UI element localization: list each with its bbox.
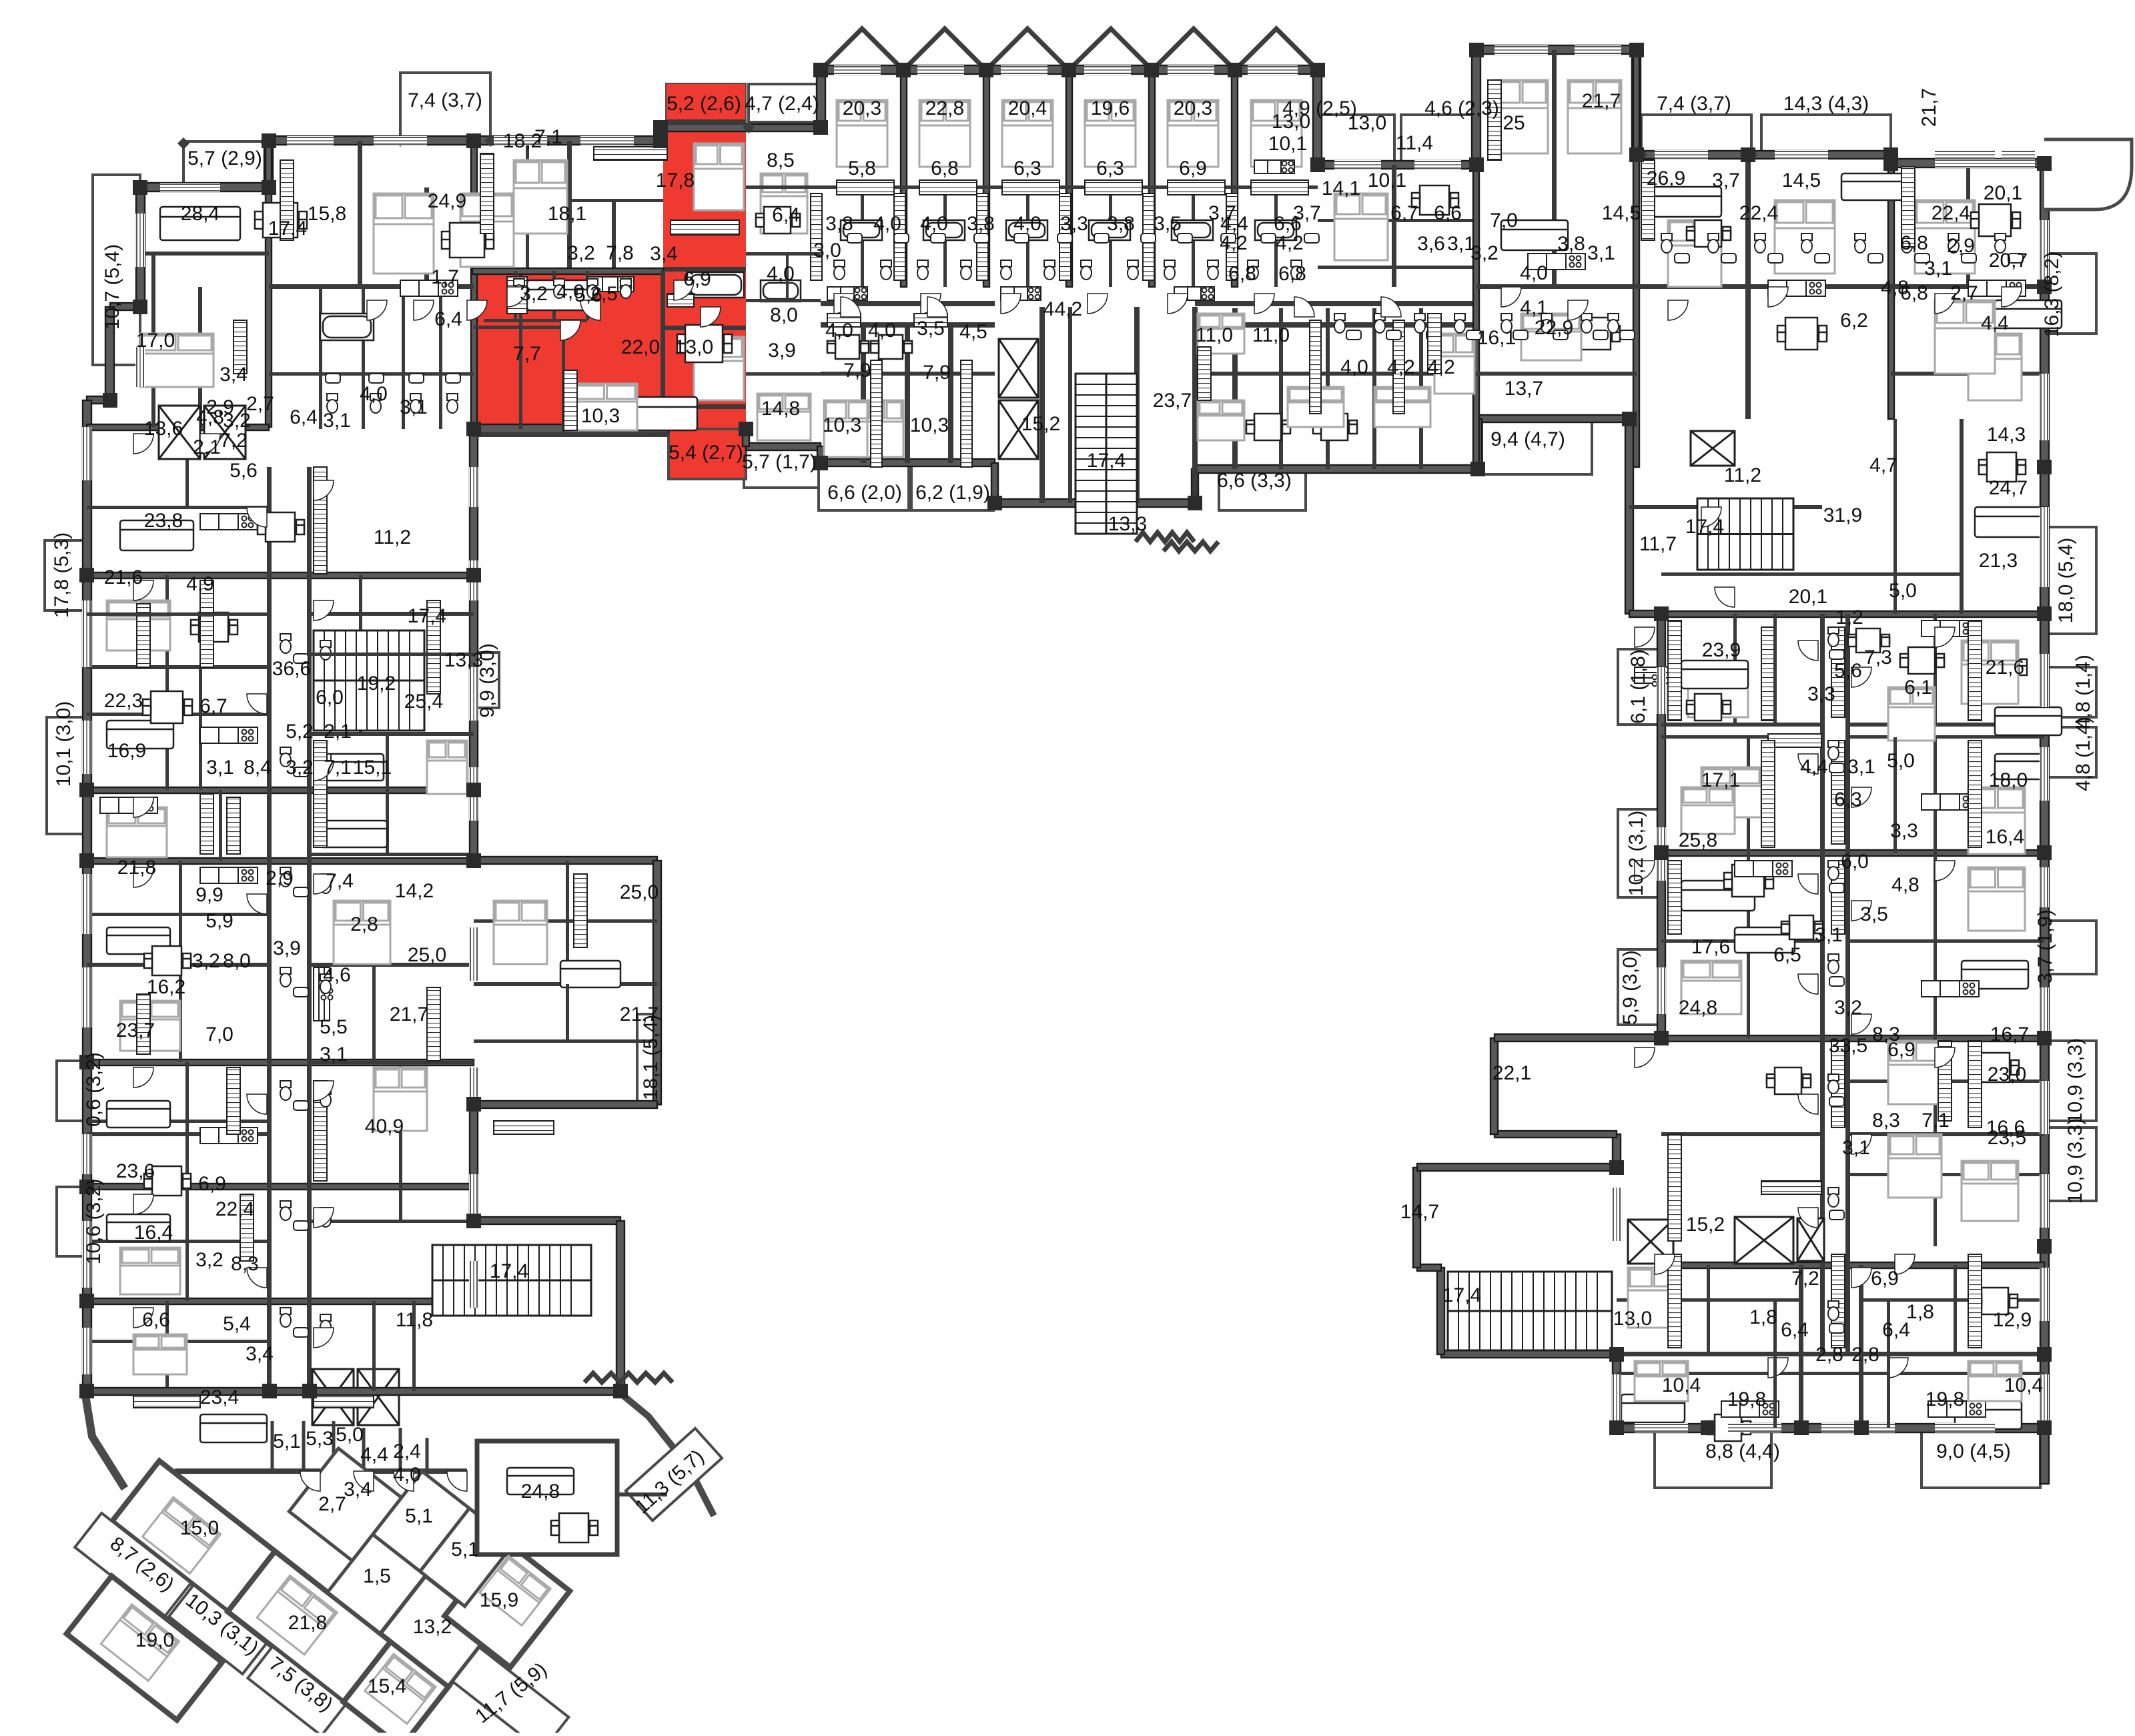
svg-text:2,7: 2,7 (318, 1493, 346, 1515)
svg-text:3,1: 3,1 (400, 396, 428, 418)
svg-text:23,8: 23,8 (144, 510, 183, 532)
svg-text:4,8 (1,4): 4,8 (1,4) (2072, 717, 2094, 791)
svg-text:6,9: 6,9 (1887, 1039, 1915, 1061)
svg-text:4,0: 4,0 (873, 213, 901, 235)
svg-text:4,6: 4,6 (323, 964, 351, 986)
svg-text:4,8: 4,8 (1891, 874, 1919, 896)
svg-text:3,2: 3,2 (192, 950, 220, 972)
svg-text:13,0: 13,0 (1613, 1308, 1652, 1330)
svg-text:3,5: 3,5 (917, 318, 945, 340)
svg-text:8,5: 8,5 (767, 149, 795, 171)
svg-text:24,7: 24,7 (1989, 477, 2028, 499)
svg-text:13,7: 13,7 (1505, 378, 1543, 400)
svg-text:10,9 (3,3): 10,9 (3,3) (2064, 1118, 2086, 1204)
svg-text:3,8: 3,8 (967, 213, 995, 235)
svg-text:3,2: 3,2 (1470, 242, 1499, 264)
svg-text:5,1: 5,1 (405, 1505, 433, 1527)
svg-text:21,6: 21,6 (104, 566, 143, 588)
svg-text:10,7 (5,4): 10,7 (5,4) (101, 244, 123, 330)
svg-text:4,7: 4,7 (1869, 454, 1897, 476)
svg-text:4,5: 4,5 (959, 321, 987, 343)
svg-text:13,0: 13,0 (675, 336, 713, 358)
svg-text:6,7: 6,7 (1390, 202, 1418, 224)
svg-text:14,3: 14,3 (1987, 424, 2026, 446)
svg-text:11,4: 11,4 (1396, 132, 1433, 154)
svg-text:6,7: 6,7 (199, 695, 228, 717)
svg-text:20,3: 20,3 (843, 97, 881, 119)
svg-text:7,8: 7,8 (606, 242, 634, 264)
svg-text:5,2 (2,6): 5,2 (2,6) (667, 93, 741, 115)
svg-text:7,0: 7,0 (205, 1023, 234, 1045)
svg-text:11,0: 11,0 (1196, 324, 1233, 346)
svg-text:4,9: 4,9 (186, 573, 214, 595)
svg-text:5,0: 5,0 (1889, 580, 1917, 602)
svg-text:19,8: 19,8 (1727, 1388, 1766, 1410)
svg-text:3,7: 3,7 (1712, 169, 1740, 191)
svg-text:12,9: 12,9 (1993, 1309, 2032, 1331)
svg-text:20,1: 20,1 (1789, 586, 1827, 608)
svg-text:16,9: 16,9 (107, 740, 146, 762)
svg-text:11,7: 11,7 (1639, 533, 1677, 555)
svg-text:6,3: 6,3 (1096, 157, 1124, 179)
svg-text:15,1: 15,1 (353, 757, 392, 779)
svg-text:15,9: 15,9 (480, 1589, 518, 1611)
svg-text:3,4: 3,4 (246, 1343, 274, 1365)
svg-text:6,4: 6,4 (434, 308, 462, 330)
svg-text:36,6: 36,6 (272, 658, 311, 680)
svg-text:23,6: 23,6 (116, 1160, 155, 1182)
svg-text:11,8: 11,8 (396, 1309, 433, 1331)
svg-text:13,0: 13,0 (1348, 112, 1386, 134)
svg-text:17,4: 17,4 (1087, 450, 1126, 472)
svg-text:3,2: 3,2 (195, 1249, 224, 1271)
svg-text:4,2: 4,2 (1427, 356, 1455, 378)
svg-text:7,4: 7,4 (326, 870, 354, 892)
svg-text:7,7: 7,7 (513, 343, 541, 365)
svg-text:6,6: 6,6 (1434, 202, 1462, 224)
svg-text:17,0: 17,0 (136, 330, 175, 352)
svg-text:16,4: 16,4 (1986, 826, 2024, 848)
svg-text:4,0: 4,0 (1340, 356, 1368, 378)
svg-text:40,9: 40,9 (365, 1116, 404, 1138)
svg-text:14,5: 14,5 (1782, 169, 1821, 191)
svg-text:1,7: 1,7 (431, 266, 459, 288)
svg-text:6,4: 6,4 (290, 406, 318, 428)
svg-text:4,8: 4,8 (196, 406, 224, 428)
svg-text:6,1 (1,8): 6,1 (1,8) (1627, 649, 1649, 724)
svg-text:6,8: 6,8 (1900, 232, 1928, 254)
svg-text:1,5: 1,5 (363, 1565, 391, 1587)
svg-text:10,4: 10,4 (1662, 1374, 1701, 1396)
svg-text:15,2: 15,2 (1021, 413, 1060, 435)
svg-text:4,7 (2,4): 4,7 (2,4) (745, 93, 819, 115)
svg-text:16,4: 16,4 (134, 1222, 173, 1244)
svg-text:3,8: 3,8 (1557, 233, 1585, 255)
svg-text:6,2: 6,2 (1840, 310, 1868, 332)
svg-text:5,7 (1,7): 5,7 (1,7) (742, 451, 817, 473)
svg-text:25,8: 25,8 (1679, 829, 1717, 851)
svg-text:14,7: 14,7 (1400, 1201, 1439, 1223)
svg-text:13,6: 13,6 (144, 418, 183, 440)
svg-text:5,6: 5,6 (230, 460, 258, 482)
svg-text:7,4 (3,7): 7,4 (3,7) (408, 89, 482, 111)
svg-text:6,9: 6,9 (683, 268, 711, 290)
svg-text:22,4: 22,4 (1739, 202, 1778, 224)
svg-text:28,4: 28,4 (181, 203, 220, 225)
svg-text:21,7: 21,7 (620, 1003, 659, 1025)
svg-text:14,3 (4,3): 14,3 (4,3) (1783, 93, 1869, 115)
svg-text:11,2: 11,2 (1724, 464, 1761, 486)
svg-text:21,8: 21,8 (117, 857, 156, 879)
svg-text:10,3: 10,3 (581, 405, 620, 427)
svg-text:4,0: 4,0 (1520, 262, 1548, 284)
svg-text:6,3: 6,3 (1834, 789, 1862, 811)
svg-text:17,1: 17,1 (1701, 769, 1740, 791)
svg-text:17,4: 17,4 (268, 218, 307, 240)
svg-text:6,8: 6,8 (1278, 263, 1306, 285)
svg-text:23,7: 23,7 (116, 1019, 155, 1041)
svg-text:7,4 (3,7): 7,4 (3,7) (1657, 93, 1731, 115)
svg-text:25,0: 25,0 (620, 881, 659, 903)
svg-text:21,7: 21,7 (1582, 90, 1621, 112)
svg-text:5,1: 5,1 (451, 1539, 479, 1561)
svg-text:5,3: 5,3 (306, 1428, 334, 1450)
svg-text:10,9 (3,3): 10,9 (3,3) (2064, 1038, 2086, 1124)
svg-text:25,0: 25,0 (408, 944, 446, 966)
svg-text:1,8: 1,8 (1906, 1301, 1934, 1323)
svg-text:8,0: 8,0 (223, 950, 251, 972)
svg-text:6,6: 6,6 (142, 1309, 170, 1331)
svg-text:17,4: 17,4 (408, 605, 446, 627)
svg-text:22,0: 22,0 (621, 336, 660, 358)
svg-text:8,4: 8,4 (244, 757, 272, 779)
svg-text:10,3: 10,3 (823, 414, 861, 436)
svg-text:25: 25 (1503, 112, 1525, 134)
svg-text:22,9: 22,9 (1535, 317, 1573, 339)
svg-text:10,3: 10,3 (910, 414, 949, 436)
svg-text:5,9 (3,0): 5,9 (3,0) (1619, 950, 1641, 1025)
svg-text:2,1: 2,1 (324, 721, 352, 743)
svg-text:4,0: 4,0 (360, 383, 388, 405)
svg-text:2,1: 2,1 (193, 436, 221, 458)
svg-text:7,1: 7,1 (324, 757, 352, 779)
svg-text:21,7: 21,7 (390, 1003, 428, 1025)
svg-text:3,5: 3,5 (1154, 213, 1182, 235)
svg-text:10,6 (3,2): 10,6 (3,2) (83, 1179, 105, 1264)
svg-text:17,8 (5,3): 17,8 (5,3) (51, 532, 73, 618)
svg-text:16,2: 16,2 (147, 976, 185, 998)
svg-text:3,1: 3,1 (1842, 1137, 1870, 1159)
svg-text:19,8: 19,8 (1926, 1388, 1964, 1410)
svg-text:9,4 (4,7): 9,4 (4,7) (1490, 428, 1565, 450)
svg-text:11,2: 11,2 (374, 526, 411, 548)
svg-text:4,2: 4,2 (1387, 356, 1415, 378)
svg-text:11,0: 11,0 (1252, 324, 1290, 346)
svg-text:8,8 (4,4): 8,8 (4,4) (1705, 1440, 1780, 1462)
svg-text:7,3: 7,3 (1864, 646, 1892, 669)
svg-text:7,1: 7,1 (1922, 1110, 1950, 1132)
svg-text:7,2: 7,2 (220, 430, 248, 452)
svg-text:3,7 (1,9): 3,7 (1,9) (2034, 909, 2056, 984)
svg-text:18,0: 18,0 (1989, 769, 2028, 791)
svg-text:23,9: 23,9 (1702, 639, 1741, 661)
svg-text:3,1: 3,1 (323, 410, 351, 432)
svg-text:5,8: 5,8 (848, 157, 876, 179)
svg-text:23,5: 23,5 (1988, 1127, 2026, 1149)
svg-text:7,9: 7,9 (843, 360, 871, 382)
svg-text:3,6: 3,6 (1417, 233, 1445, 255)
svg-text:2,9: 2,9 (1947, 235, 1975, 257)
svg-text:6,6 (3,3): 6,6 (3,3) (1217, 470, 1292, 492)
svg-text:7,9: 7,9 (923, 362, 951, 384)
svg-text:22,1: 22,1 (1492, 1062, 1531, 1084)
svg-text:4,0: 4,0 (1013, 213, 1041, 235)
svg-text:9,9 (3,0): 9,9 (3,0) (476, 643, 498, 718)
svg-text:6,0: 6,0 (1841, 851, 1869, 873)
svg-text:19,6: 19,6 (1091, 97, 1130, 119)
svg-text:21,8: 21,8 (288, 1612, 327, 1634)
svg-text:22,3: 22,3 (104, 690, 143, 712)
svg-text:3,5: 3,5 (1860, 903, 1888, 925)
svg-text:20,1: 20,1 (1984, 182, 2022, 204)
svg-text:2,8: 2,8 (1815, 1344, 1843, 1366)
svg-text:3,8: 3,8 (1107, 213, 1135, 235)
svg-text:3,3: 3,3 (1060, 213, 1088, 235)
svg-text:22,4: 22,4 (216, 1198, 254, 1220)
svg-text:3,1: 3,1 (1587, 242, 1615, 264)
svg-text:20,4: 20,4 (1008, 97, 1047, 119)
svg-text:3,2: 3,2 (223, 410, 251, 432)
svg-text:4,8: 4,8 (1881, 277, 1909, 299)
svg-text:5,6: 5,6 (1834, 660, 1862, 682)
svg-text:10,1 (3,0): 10,1 (3,0) (53, 701, 75, 787)
svg-text:3,1: 3,1 (1815, 924, 1843, 946)
svg-text:10,1: 10,1 (1268, 133, 1307, 155)
svg-text:33,5: 33,5 (1829, 1035, 1867, 1057)
svg-text:9,9: 9,9 (195, 884, 224, 906)
svg-text:3,1: 3,1 (320, 1043, 348, 1065)
svg-text:4,2: 4,2 (1220, 232, 1248, 254)
svg-text:3,2: 3,2 (567, 242, 595, 264)
svg-text:6,9: 6,9 (1871, 1268, 1899, 1290)
svg-text:5,2: 5,2 (286, 721, 314, 743)
svg-text:1,2: 1,2 (1835, 606, 1863, 628)
svg-text:26,9: 26,9 (1647, 167, 1685, 189)
svg-text:7,2: 7,2 (1791, 1268, 1819, 1290)
svg-text:6,2 (1,9): 6,2 (1,9) (915, 482, 990, 504)
svg-text:8,3: 8,3 (1872, 1110, 1900, 1132)
svg-text:5,7 (2,9): 5,7 (2,9) (187, 147, 262, 169)
svg-text:14,1: 14,1 (1322, 177, 1360, 199)
svg-text:18,1 (5,4): 18,1 (5,4) (640, 1015, 662, 1100)
svg-text:4,0: 4,0 (868, 320, 896, 342)
svg-text:18,1: 18,1 (548, 203, 586, 225)
svg-text:2,8: 2,8 (350, 913, 378, 935)
svg-text:20,7: 20,7 (1989, 250, 2028, 272)
svg-text:3,8: 3,8 (825, 213, 853, 235)
svg-text:24,9: 24,9 (428, 190, 466, 212)
svg-text:5,9: 5,9 (205, 910, 234, 932)
svg-text:6,6 (2,0): 6,6 (2,0) (827, 482, 902, 504)
svg-text:4,2: 4,2 (1276, 232, 1304, 254)
svg-text:18,0 (5,4): 18,0 (5,4) (2055, 538, 2077, 623)
svg-text:9,0 (4,5): 9,0 (4,5) (1936, 1440, 2011, 1462)
svg-text:13,2: 13,2 (413, 1616, 452, 1638)
svg-text:7,1: 7,1 (534, 126, 562, 148)
svg-text:31,9: 31,9 (1823, 504, 1862, 526)
svg-text:5,4: 5,4 (223, 1313, 251, 1335)
svg-text:3,2: 3,2 (520, 283, 548, 305)
svg-text:17,4: 17,4 (1685, 516, 1724, 538)
svg-text:23,0: 23,0 (1988, 1063, 2026, 1086)
svg-text:7,0: 7,0 (1490, 209, 1518, 232)
svg-text:6,4: 6,4 (1882, 1319, 1910, 1341)
svg-text:17,6: 17,6 (1691, 936, 1730, 958)
svg-text:20,3: 20,3 (1174, 97, 1212, 119)
svg-text:6,4: 6,4 (1781, 1319, 1809, 1341)
svg-text:24,8: 24,8 (1679, 997, 1717, 1019)
svg-text:6,9: 6,9 (1179, 157, 1207, 179)
svg-text:4,0: 4,0 (825, 320, 853, 342)
svg-text:3,2: 3,2 (1834, 997, 1862, 1019)
svg-text:23,7: 23,7 (1153, 390, 1192, 412)
svg-text:5,4 (2,7): 5,4 (2,7) (669, 442, 743, 464)
svg-text:3,4: 3,4 (220, 364, 248, 386)
svg-text:3,7: 3,7 (1208, 202, 1236, 224)
svg-text:10,1: 10,1 (1368, 169, 1406, 191)
svg-text:3,4: 3,4 (344, 1478, 372, 1500)
svg-text:13,3: 13,3 (1108, 513, 1147, 535)
svg-text:3,2: 3,2 (286, 757, 314, 779)
svg-text:6,9: 6,9 (198, 1173, 226, 1195)
svg-text:0,6 (3,2): 0,6 (3,2) (83, 1052, 105, 1127)
svg-text:6,4: 6,4 (772, 204, 800, 226)
svg-text:14,8: 14,8 (761, 398, 800, 420)
svg-text:3,1: 3,1 (206, 757, 234, 779)
svg-text:10,4: 10,4 (2004, 1374, 2043, 1396)
svg-text:15,0: 15,0 (180, 1517, 219, 1539)
svg-text:24,8: 24,8 (521, 1480, 560, 1502)
svg-text:4,0: 4,0 (393, 1464, 421, 1486)
svg-text:3,3: 3,3 (1807, 683, 1835, 705)
svg-text:17,4: 17,4 (490, 1260, 528, 1282)
svg-text:6,5: 6,5 (1773, 944, 1801, 966)
svg-text:16,1: 16,1 (1477, 327, 1516, 349)
svg-text:2,4: 2,4 (393, 1440, 421, 1462)
svg-text:22,4: 22,4 (1932, 202, 1970, 224)
svg-text:5,5: 5,5 (320, 1016, 348, 1038)
svg-text:1,8: 1,8 (1749, 1306, 1777, 1328)
svg-text:5,1: 5,1 (273, 1430, 301, 1452)
svg-text:21,6: 21,6 (1986, 657, 2024, 679)
svg-text:2,7: 2,7 (1950, 282, 1978, 304)
svg-text:4,0: 4,0 (920, 213, 948, 235)
svg-text:15,8: 15,8 (308, 203, 346, 225)
svg-text:16,7: 16,7 (1990, 1023, 2029, 1045)
svg-text:15,4: 15,4 (368, 1675, 406, 1697)
svg-text:3,9: 3,9 (273, 937, 301, 959)
svg-text:21,7: 21,7 (1918, 88, 1940, 127)
svg-text:23,4: 23,4 (200, 1386, 239, 1408)
svg-text:16,3 (8,2): 16,3 (8,2) (2041, 252, 2063, 337)
svg-text:10,2 (3,1): 10,2 (3,1) (1625, 811, 1647, 896)
svg-text:4,1: 4,1 (1520, 297, 1548, 319)
svg-text:14,2: 14,2 (395, 880, 434, 902)
svg-text:3,9: 3,9 (768, 340, 796, 362)
svg-text:44,2: 44,2 (1043, 298, 1082, 320)
svg-text:25,4: 25,4 (404, 691, 443, 713)
svg-text:3,0: 3,0 (813, 240, 841, 262)
svg-text:4,0: 4,0 (767, 263, 795, 285)
svg-text:17,8: 17,8 (656, 169, 695, 191)
svg-text:4,4: 4,4 (1800, 756, 1828, 778)
svg-text:2,8: 2,8 (1851, 1344, 1879, 1366)
svg-text:4,6 (2,3): 4,6 (2,3) (1424, 97, 1499, 119)
svg-text:17,4: 17,4 (1442, 1284, 1481, 1306)
svg-text:4,4: 4,4 (1981, 312, 2009, 334)
svg-text:14,5: 14,5 (1602, 202, 1641, 224)
svg-text:6,8: 6,8 (1228, 263, 1256, 285)
svg-text:3,1: 3,1 (1847, 756, 1875, 778)
svg-text:5,0: 5,0 (1887, 750, 1915, 772)
svg-text:19,2: 19,2 (357, 673, 396, 695)
svg-text:21,3: 21,3 (1979, 550, 2018, 572)
svg-text:3,3: 3,3 (1890, 820, 1918, 842)
svg-text:3,1: 3,1 (1924, 258, 1952, 280)
svg-text:22,8: 22,8 (925, 97, 964, 119)
svg-text:8,0: 8,0 (770, 304, 798, 326)
svg-text:15,2: 15,2 (1686, 1214, 1725, 1236)
svg-text:3,4: 3,4 (650, 243, 678, 265)
svg-text:6,0: 6,0 (316, 687, 344, 709)
svg-text:19,0: 19,0 (135, 1629, 174, 1651)
svg-text:6,8: 6,8 (931, 157, 959, 179)
svg-text:5,0: 5,0 (336, 1424, 364, 1446)
svg-text:3,7: 3,7 (1293, 202, 1321, 224)
svg-text:5,6: 5,6 (574, 284, 602, 306)
svg-text:6,3: 6,3 (1013, 157, 1041, 179)
svg-text:2,9: 2,9 (266, 867, 294, 889)
svg-text:4,4: 4,4 (360, 1444, 388, 1466)
svg-text:6,1: 6,1 (1904, 677, 1932, 699)
svg-text:8,3: 8,3 (231, 1253, 259, 1275)
svg-text:4,9 (2,5): 4,9 (2,5) (1282, 97, 1357, 119)
